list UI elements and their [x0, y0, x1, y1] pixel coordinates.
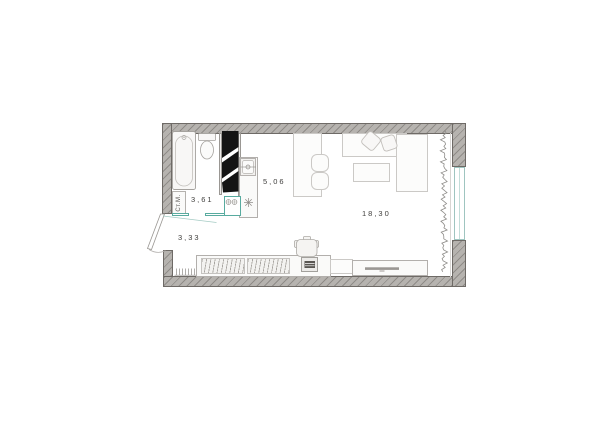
ottoman: [353, 163, 390, 182]
radiator: [175, 269, 197, 276]
chair: [295, 237, 319, 257]
floor-plan: 3,61 5,06 3,33 18,30 Ст.М.: [0, 0, 600, 424]
cabinet-front-2: [247, 258, 290, 274]
appliance-box: [224, 196, 241, 216]
entrance-door: [148, 214, 166, 252]
dining-chair-1: [311, 154, 329, 172]
room-area-label-living: 18,30: [362, 209, 391, 218]
washing-machine-label: Ст.М.: [172, 187, 186, 219]
wardrobe: [222, 131, 239, 193]
wall-right-lower: [452, 240, 466, 287]
window-ledge-line: [450, 133, 451, 277]
low-cabinet: [330, 259, 353, 274]
bed: [396, 134, 428, 192]
cabinet-front-1: [201, 258, 245, 274]
toilet: [199, 134, 216, 160]
wall-bottom: [163, 276, 466, 287]
room-area-label-kitchen: 5,06: [263, 177, 286, 186]
bathtub: [173, 132, 196, 190]
partition-toilet-wardrobe: [219, 133, 222, 195]
wall-left-upper: [162, 123, 172, 214]
curtain: [440, 131, 447, 272]
plan-details: [0, 0, 600, 424]
dining-chair-2: [311, 172, 329, 190]
tv-stand: [352, 260, 428, 276]
window-glass-line: [459, 168, 460, 239]
kitchen-counter-vertical: [239, 157, 258, 218]
room-area-label-hallway: 3,33: [178, 233, 201, 242]
room-area-label-bathroom: 3,61: [191, 195, 214, 204]
wall-right-upper: [452, 123, 466, 167]
